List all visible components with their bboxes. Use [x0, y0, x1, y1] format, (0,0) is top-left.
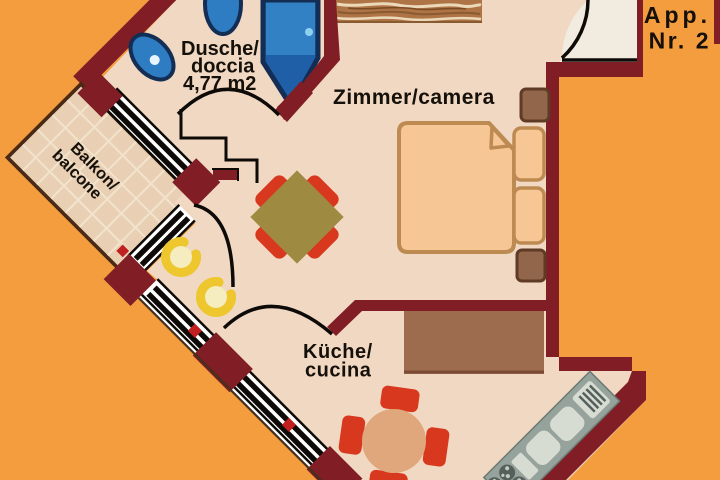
svg-text:4,77 m2: 4,77 m2: [183, 73, 256, 95]
svg-text:cucina: cucina: [305, 360, 372, 382]
svg-text:App.: App.: [644, 2, 711, 28]
svg-text:Nr. 2: Nr. 2: [649, 28, 711, 54]
svg-text:Zimmer/camera: Zimmer/camera: [333, 86, 495, 109]
